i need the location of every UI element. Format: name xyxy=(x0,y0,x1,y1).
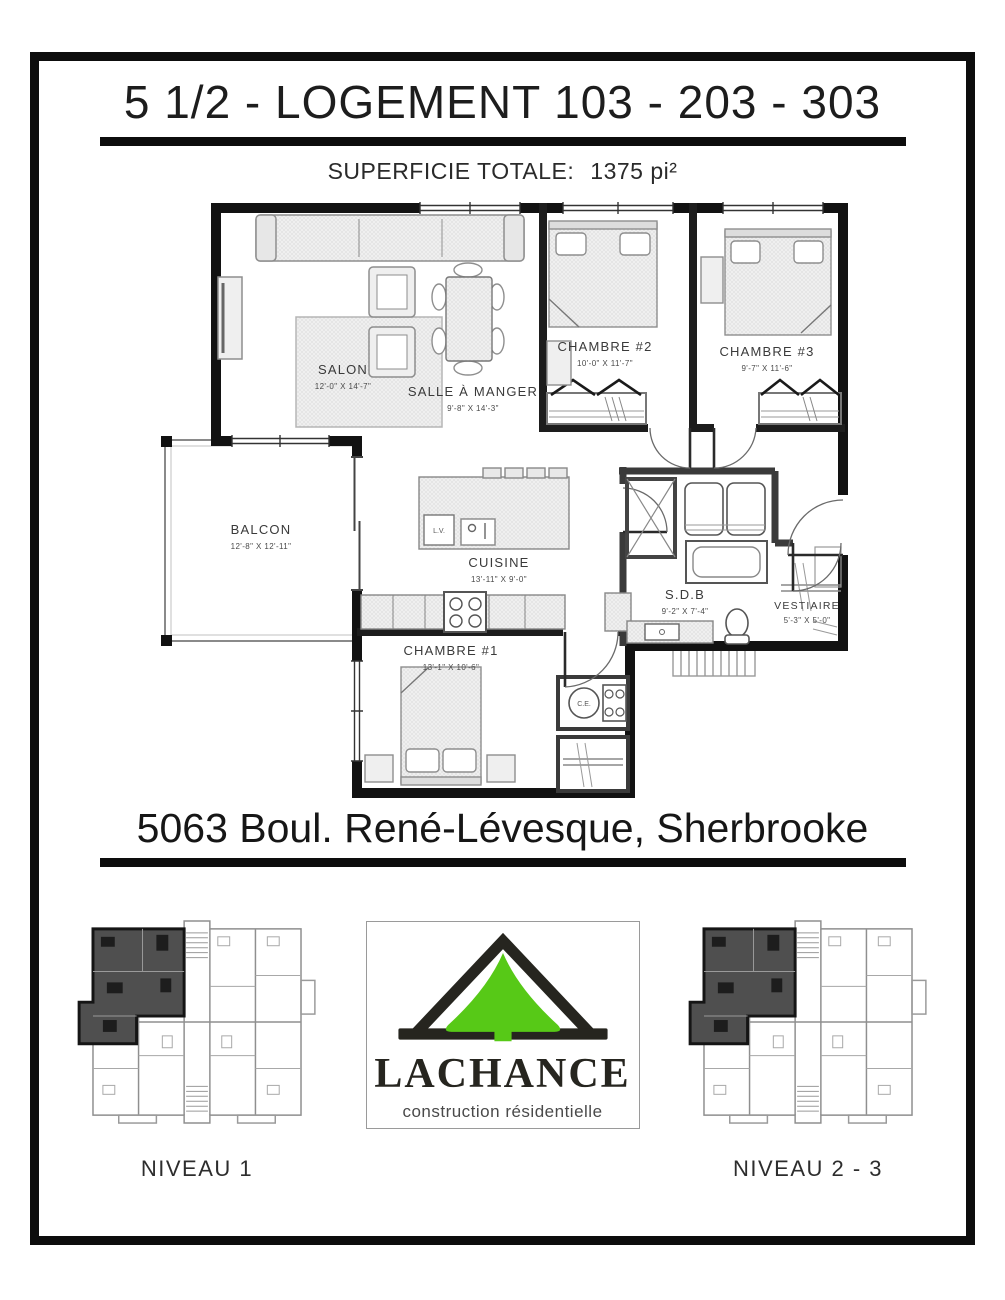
svg-text:12'-0" X 14'-7": 12'-0" X 14'-7" xyxy=(314,382,371,391)
svg-text:S.D.B: S.D.B xyxy=(665,587,705,602)
svg-text:SALLE À MANGER: SALLE À MANGER xyxy=(407,384,537,399)
highlighted-unit xyxy=(79,929,184,1044)
lachance-logo-emblem xyxy=(388,929,618,1049)
superficie-value: 1375 pi² xyxy=(590,158,677,184)
niveau23-mini-plan xyxy=(677,917,939,1127)
footer: NIVEAU 1 LACHANCE construction résidenti… xyxy=(39,917,966,1182)
window-chambre1-left xyxy=(351,661,363,761)
svg-text:CHAMBRE #1: CHAMBRE #1 xyxy=(403,643,498,658)
svg-text:10'-0" X 11'-7": 10'-0" X 11'-7" xyxy=(577,359,633,368)
niveau1-mini-plan xyxy=(66,917,328,1127)
svg-text:5'-3" X 5'-0": 5'-3" X 5'-0" xyxy=(783,616,830,625)
logo-tree-shape xyxy=(445,953,559,1041)
address-divider xyxy=(100,858,906,867)
water-heater-label: C.E. xyxy=(577,701,591,708)
window-salon-top xyxy=(420,202,520,214)
svg-text:VESTIAIRE: VESTIAIRE xyxy=(774,600,840,612)
page-title: 5 1/2 - LOGEMENT 103 - 203 - 303 xyxy=(39,75,966,129)
svg-text:SALON: SALON xyxy=(317,362,367,377)
svg-text:13'-11" X 9'-0": 13'-11" X 9'-0" xyxy=(471,575,527,584)
water-heater-closet xyxy=(558,677,628,729)
title-divider xyxy=(100,137,906,146)
page-border-frame: 5 1/2 - LOGEMENT 103 - 203 - 303 SUPERFI… xyxy=(30,52,975,1245)
room-label-salon: SALON 12'-0" X 14'-7" xyxy=(314,362,371,391)
superficie-label: SUPERFICIE TOTALE: xyxy=(328,158,575,184)
room-label-sdb: S.D.B 9'-2" X 7'-4" xyxy=(661,587,708,616)
chambre3-furniture xyxy=(701,229,831,335)
window-chambre2-top xyxy=(563,202,673,214)
closet-chambre3 xyxy=(759,380,841,424)
svg-text:12'-8" X 12'-11": 12'-8" X 12'-11" xyxy=(230,542,291,551)
closets xyxy=(547,380,841,791)
niveau23-label: NIVEAU 2 - 3 xyxy=(670,1156,946,1182)
patio-door xyxy=(351,457,363,590)
linen-closet xyxy=(558,737,628,791)
builder-logo: LACHANCE construction résidentielle xyxy=(366,921,640,1129)
room-label-vestiaire: VESTIAIRE 5'-3" X 5'-0" xyxy=(774,600,840,625)
svg-text:CHAMBRE #2: CHAMBRE #2 xyxy=(557,339,652,354)
svg-text:CUISINE: CUISINE xyxy=(468,555,529,570)
bathroom-fixtures xyxy=(627,479,767,644)
highlighted-unit xyxy=(690,929,795,1044)
flyer-page: { "header": { "title": "5 1/2 - LOGEMENT… xyxy=(0,0,1005,1300)
window-chambre3-top xyxy=(723,202,823,214)
niveau23-thumbnail-block: NIVEAU 2 - 3 xyxy=(670,917,946,1182)
niveau1-label: NIVEAU 1 xyxy=(59,1156,335,1182)
dining-furniture xyxy=(432,263,504,375)
room-label-balcon: BALCON 12'-8" X 12'-11" xyxy=(230,522,291,551)
room-label-cuisine: CUISINE 13'-11" X 9'-0" xyxy=(468,555,529,584)
window-salon-balcony xyxy=(232,435,329,447)
svg-text:9'-8" X 14'-3": 9'-8" X 14'-3" xyxy=(447,404,499,413)
address-line: 5063 Boul. René-Lévesque, Sherbrooke xyxy=(39,805,966,852)
chambre1-furniture xyxy=(365,667,515,785)
svg-text:CHAMBRE #3: CHAMBRE #3 xyxy=(719,344,814,359)
room-label-chambre3: CHAMBRE #3 9'-7" X 11'-6" xyxy=(719,344,814,373)
exterior-steps xyxy=(673,648,755,676)
superficie-line: SUPERFICIE TOTALE:1375 pi² xyxy=(39,158,966,185)
room-label-chambre2: CHAMBRE #2 10'-0" X 11'-7" xyxy=(557,339,652,368)
closet-chambre2 xyxy=(547,380,646,424)
svg-text:9'-7" X 11'-6": 9'-7" X 11'-6" xyxy=(741,364,792,373)
svg-text:BALCON: BALCON xyxy=(230,522,291,537)
balcony-deck xyxy=(161,436,359,646)
svg-text:13'-1" X 10'-6": 13'-1" X 10'-6" xyxy=(422,663,479,672)
logo-tagline: construction résidentielle xyxy=(402,1102,602,1122)
svg-text:9'-2" X 7'-4": 9'-2" X 7'-4" xyxy=(661,607,708,616)
niveau1-thumbnail-block: NIVEAU 1 xyxy=(59,917,335,1182)
dishwasher-label: L.V. xyxy=(433,528,445,535)
kitchen-furniture xyxy=(361,468,631,632)
floor-plan: SALON 12'-0" X 14'-7" SALLE À MANGER 9'-… xyxy=(153,191,853,803)
logo-name: LACHANCE xyxy=(374,1053,630,1095)
